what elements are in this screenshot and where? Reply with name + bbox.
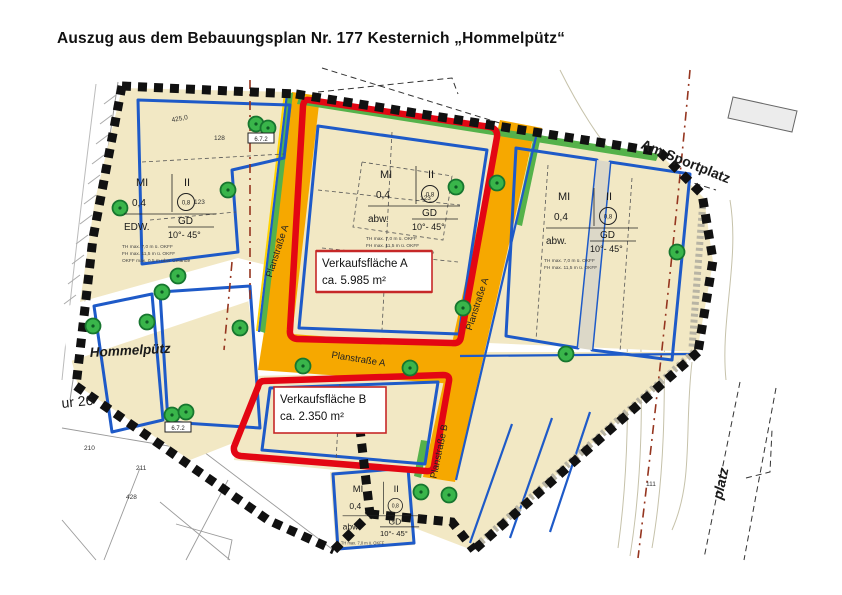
zoning-grz: 0,4 xyxy=(554,212,568,223)
tree-box-text: 6.7.2 xyxy=(171,426,185,432)
zoning-use: MI xyxy=(136,177,148,189)
page: Auszug aus dem Bebauungsplan Nr. 177 Kes… xyxy=(0,0,842,595)
sale-area-b-size: ca. 2.350 m² xyxy=(280,411,344,423)
zoning-roof: 10°- 45° xyxy=(168,230,201,240)
parcel-number: 210 xyxy=(84,445,95,452)
sale-area-a-callout: Verkaufsfläche A ca. 5.985 m² xyxy=(316,251,432,292)
tree-icon xyxy=(86,319,101,334)
zoning-abw: abw. xyxy=(343,521,361,531)
tree-box-text: 6.7.2 xyxy=(254,137,268,143)
zoning-note: FH max. 11,5 m ü. OKFF xyxy=(122,251,175,257)
zoning-abw: abw. xyxy=(546,236,567,247)
zoning-gd: GD xyxy=(389,516,402,526)
zoning-note: TH max. 7,0 m ü. OKFF xyxy=(366,236,417,242)
tree-icon xyxy=(233,321,248,336)
zoning-use: MI xyxy=(380,169,392,181)
zoning-roof: 10°- 45° xyxy=(590,244,623,254)
tree-icon xyxy=(670,245,685,260)
parcel-number: 123 xyxy=(194,199,205,206)
zoning-roof: 10°- 45° xyxy=(412,222,445,232)
tree-icon xyxy=(221,183,236,198)
tree-icon xyxy=(296,359,311,374)
zoning-roof: 10°- 45° xyxy=(380,529,408,538)
tree-box-label: 6.7.2 xyxy=(165,422,191,432)
tree-icon xyxy=(449,180,464,195)
zoning-grz: 0,4 xyxy=(376,190,390,201)
tree-icon xyxy=(113,201,128,216)
zoning-circle: 0,8 xyxy=(182,201,191,207)
zoning-note: OKFF max. 0,5 m über Gelände xyxy=(122,258,191,264)
parcel-number: 111 xyxy=(646,481,656,488)
tree-icon xyxy=(140,315,155,330)
parcel-number: 123 xyxy=(420,195,431,202)
tree-icon xyxy=(490,176,505,191)
tree-icon xyxy=(179,405,194,420)
sale-area-b-callout: Verkaufsfläche B ca. 2.350 m² xyxy=(274,387,386,433)
sale-area-a-size: ca. 5.985 m² xyxy=(322,275,386,287)
tree-box-label: 6.7.2 xyxy=(248,133,274,143)
zoning-storeys: II xyxy=(428,169,434,181)
zoning-gd: GD xyxy=(422,208,437,219)
label-flur: ur 26 xyxy=(61,392,95,411)
zoning-note: TH max. 7,0 m ü. OKFF xyxy=(544,258,595,264)
zoning-grz: 0,4 xyxy=(349,501,361,511)
tree-icon xyxy=(403,361,418,376)
zoning-note: TH max. 7,0 m ü. OKFF xyxy=(341,541,385,546)
sale-area-a-name: Verkaufsfläche A xyxy=(322,258,408,270)
tree-icon xyxy=(171,269,186,284)
zoning-note: FH max. 11,5 m ü. OKFF xyxy=(366,243,419,249)
zoning-abw: abw. xyxy=(368,214,389,225)
parcel-number: 428 xyxy=(126,494,137,501)
zoning-note: FH max. 11,5 m ü. OKFF xyxy=(544,265,597,271)
building-footprint xyxy=(728,97,797,132)
parcel-number: 128 xyxy=(214,135,225,142)
zoning-circle: 0,8 xyxy=(604,215,613,221)
zoning-circle: 0,8 xyxy=(392,504,399,510)
tree-icon xyxy=(155,285,170,300)
zoning-grz: 0,4 xyxy=(132,198,146,209)
label-platz: platz xyxy=(709,466,731,501)
zoning-gd: GD xyxy=(178,216,193,227)
zoning-use: MI xyxy=(353,484,363,494)
tree-icon xyxy=(414,485,429,500)
zoning-storeys: II xyxy=(606,191,612,203)
tree-icon xyxy=(165,408,180,423)
tree-icon xyxy=(559,347,574,362)
sale-area-b-name: Verkaufsfläche B xyxy=(280,394,367,406)
tree-icon xyxy=(442,488,457,503)
zoning-note: TH max. 7,0 m ü. OKFF xyxy=(122,244,173,250)
zoning-edw: EDW. xyxy=(124,222,150,233)
zoning-storeys: II xyxy=(394,484,399,494)
parcel-number: 211 xyxy=(136,465,147,472)
zoning-use: MI xyxy=(558,191,570,203)
zoning-gd: GD xyxy=(600,230,615,241)
plan-map: 6.7.2 6.7.2 MI II 0,4 0,8 EDW. GD 10°- 4… xyxy=(0,0,842,595)
zoning-storeys: II xyxy=(184,177,190,189)
